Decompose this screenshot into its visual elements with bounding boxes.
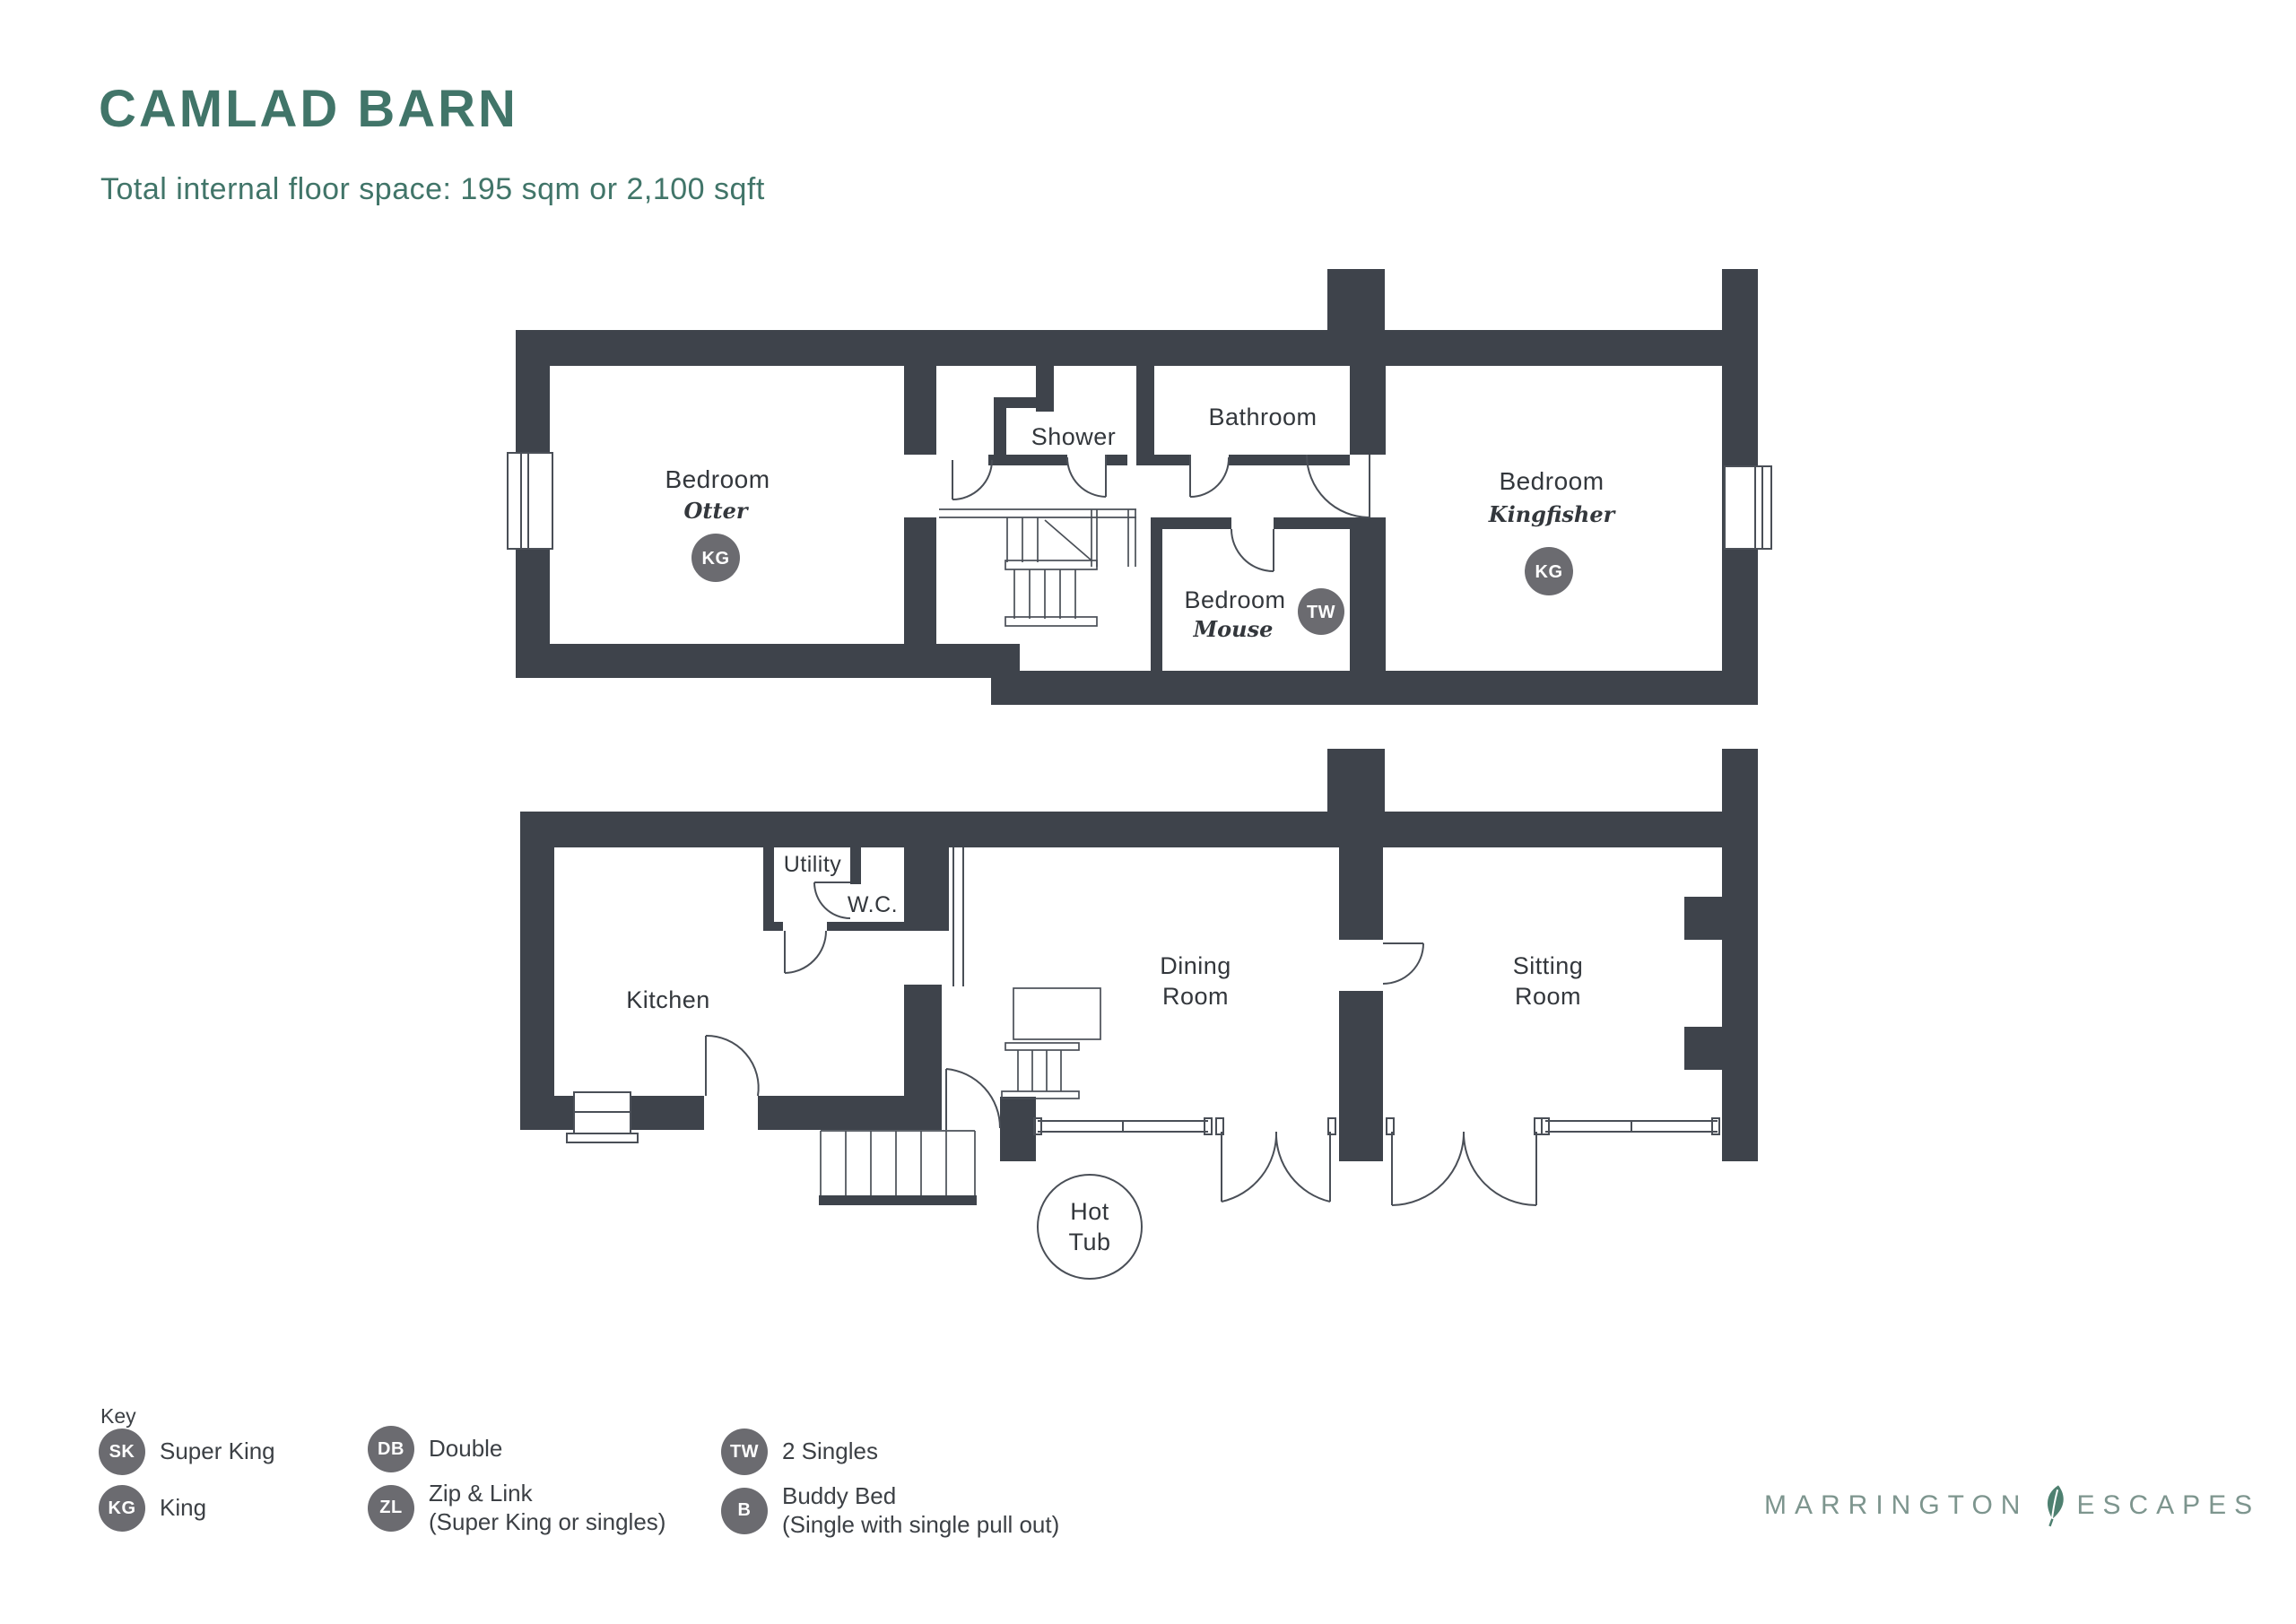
staircase-ground-floor	[1002, 988, 1100, 1099]
room-label-bathroom: Bathroom	[1208, 404, 1317, 430]
floorplan-page: CAMLAD BARN Total internal floor space: …	[0, 0, 2296, 1624]
page-subtitle: Total internal floor space: 195 sqm or 2…	[100, 172, 765, 207]
bed-badge: TW	[721, 1429, 768, 1475]
bed-badge: B	[721, 1488, 768, 1534]
french-doors-sitting	[1387, 1118, 1542, 1205]
key-item-2-singles: TW 2 Singles	[721, 1429, 878, 1475]
door-arc	[1231, 529, 1274, 571]
key-item-super-king: SK Super King	[99, 1429, 275, 1475]
room-label-shower: Shower	[1031, 423, 1117, 450]
key-item-sublabel: (Single with single pull out)	[782, 1511, 1059, 1540]
door-arc	[946, 1069, 1000, 1130]
door-arc	[1190, 455, 1229, 497]
wall	[1274, 517, 1350, 529]
wall	[1151, 517, 1162, 671]
wall	[1339, 991, 1383, 1107]
room-label-wc: W.C.	[848, 892, 898, 917]
logo-text-marrington: MARRINGTON	[1764, 1490, 2028, 1521]
room-name: Mouse	[1193, 616, 1274, 642]
entry-screen	[953, 847, 963, 986]
page-title: CAMLAD BARN	[99, 79, 518, 139]
wall	[904, 985, 942, 1130]
door-arc	[1067, 455, 1106, 497]
room-label-dining: Dining Room	[1160, 952, 1231, 1010]
room-bedroom-kingfisher: Bedroom Kingfisher KG	[1488, 467, 1617, 595]
bed-badge: KG	[691, 534, 740, 582]
hot-tub: Hot Tub	[1038, 1175, 1142, 1279]
wall	[1722, 749, 1758, 1161]
wall	[1339, 1103, 1383, 1161]
bed-badge: KG	[1525, 547, 1573, 595]
svg-text:Dining: Dining	[1160, 952, 1231, 979]
room-label: Bedroom	[1184, 586, 1285, 613]
door-arc	[814, 882, 850, 918]
wall	[1154, 455, 1190, 465]
key-item-label: Buddy Bed	[782, 1482, 1059, 1511]
wall	[904, 364, 936, 455]
key-item-label: Zip & Link	[429, 1480, 665, 1508]
key-item-double: DB Double	[368, 1426, 502, 1472]
chimney-breast	[1684, 1027, 1722, 1070]
window	[508, 453, 552, 549]
external-steps	[821, 1131, 975, 1195]
key-item-label: 2 Singles	[782, 1437, 878, 1466]
bed-badge: KG	[99, 1485, 145, 1532]
step-edge	[819, 1195, 977, 1205]
key-item-label: King	[160, 1494, 206, 1523]
window	[1542, 1118, 1719, 1134]
svg-text:KG: KG	[1535, 562, 1563, 582]
ground-floor-plan: Kitchen Utility W.C. Dining Room Sitting…	[507, 744, 1780, 1318]
bed-badge: SK	[99, 1429, 145, 1475]
wall	[904, 517, 936, 644]
room-label-kitchen: Kitchen	[626, 986, 710, 1013]
bed-badge: ZL	[368, 1485, 414, 1532]
wall	[988, 455, 1067, 465]
room-bedroom-mouse: Bedroom Mouse TW	[1184, 586, 1344, 642]
wall	[516, 330, 1758, 366]
bed-badge: DB	[368, 1426, 414, 1472]
wall	[1339, 847, 1383, 940]
kitchen-window	[567, 1092, 638, 1142]
svg-text:Sitting: Sitting	[1513, 952, 1584, 979]
wall	[520, 812, 554, 1130]
wall	[904, 845, 949, 931]
svg-text:Room: Room	[1162, 983, 1229, 1010]
key-item-sublabel: (Super King or singles)	[429, 1508, 665, 1537]
wall	[994, 397, 1006, 455]
wall	[1350, 364, 1386, 455]
key-item-label: Super King	[160, 1437, 275, 1466]
bed-badge: TW	[1298, 588, 1344, 635]
key-item-zip-link: ZL Zip & Link (Super King or singles)	[368, 1480, 665, 1536]
window	[1034, 1118, 1212, 1134]
wall	[850, 845, 861, 884]
wall	[516, 644, 991, 678]
ground-floor-doors	[706, 882, 1423, 1130]
chimney-stub	[1327, 269, 1385, 337]
svg-text:Tub: Tub	[1068, 1229, 1110, 1255]
svg-text:KG: KG	[702, 549, 730, 569]
wall	[763, 922, 783, 931]
marrington-escapes-logo: MARRINGTON ESCAPES	[1764, 1484, 2260, 1527]
key-item-label: Double	[429, 1435, 502, 1463]
wall	[991, 644, 1020, 705]
door-arc	[1383, 943, 1423, 984]
wall	[1018, 671, 1758, 705]
staircase-first-floor	[939, 509, 1136, 626]
svg-text:TW: TW	[1307, 603, 1335, 622]
svg-text:Room: Room	[1515, 983, 1581, 1010]
room-label-sitting: Sitting Room	[1513, 952, 1584, 1010]
wall	[520, 1096, 574, 1130]
room-name: Otter	[684, 498, 750, 524]
french-doors-dining	[1216, 1118, 1335, 1202]
wall	[1350, 517, 1386, 671]
chimney-breast	[1684, 897, 1722, 940]
key-item-king: KG King	[99, 1485, 206, 1532]
room-label: Bedroom	[1499, 467, 1604, 495]
door-arc	[706, 1036, 759, 1096]
leaf-icon	[2038, 1482, 2074, 1530]
wall	[763, 845, 774, 922]
chimney-stub	[1327, 749, 1385, 816]
room-bedroom-otter: Bedroom Otter KG	[665, 465, 770, 582]
door-arc	[952, 460, 992, 499]
key-heading: Key	[100, 1404, 136, 1429]
window	[1725, 466, 1771, 549]
room-label: Bedroom	[665, 465, 770, 493]
logo-text-escapes: ESCAPES	[2076, 1490, 2260, 1521]
room-name: Kingfisher	[1488, 501, 1617, 527]
wall	[1000, 1097, 1036, 1161]
first-floor-plan: Bedroom Otter KG Shower Bathroom Bedroom…	[507, 262, 1780, 710]
svg-text:Hot: Hot	[1070, 1198, 1109, 1225]
wall	[1229, 455, 1350, 465]
wall	[1136, 364, 1154, 465]
wall	[631, 1096, 704, 1130]
wall	[1106, 455, 1127, 465]
door-arc	[785, 931, 826, 973]
wall	[520, 812, 1758, 847]
key-item-buddy-bed: B Buddy Bed (Single with single pull out…	[721, 1482, 1059, 1539]
room-label-utility: Utility	[784, 852, 842, 877]
wall	[1151, 517, 1231, 529]
